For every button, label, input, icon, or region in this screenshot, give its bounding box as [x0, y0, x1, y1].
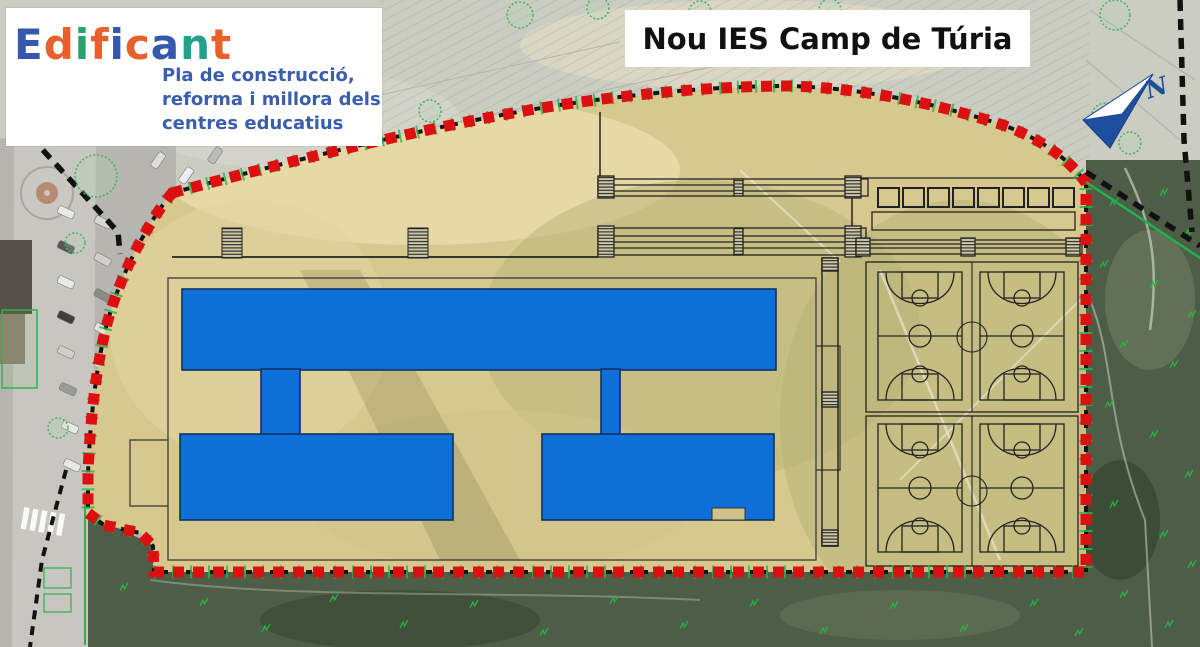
logo-text: Edificant: [14, 20, 232, 69]
plan-title-box: Nou IES Camp de Túria: [625, 10, 1030, 67]
building-connector-east: [601, 369, 620, 435]
site-plan-screenshot: N Edificant Pla de construcció, reforma …: [0, 0, 1200, 647]
plan-title: Nou IES Camp de Túria: [642, 22, 1012, 56]
subtitle-line-2: reforma i millora dels: [162, 88, 382, 112]
edificant-logo-box: Edificant Pla de construcció, reforma i …: [6, 8, 382, 146]
subtitle-line-1: Pla de construcció,: [162, 64, 382, 88]
building-main-block: [182, 289, 776, 370]
subtitle-line-3: centres educatius: [162, 112, 382, 136]
building-connector-west: [261, 369, 300, 435]
logo-subtitle: Pla de construcció, reforma i millora de…: [162, 64, 382, 136]
building-south-west: [180, 434, 453, 520]
building-south-east: [542, 434, 774, 520]
